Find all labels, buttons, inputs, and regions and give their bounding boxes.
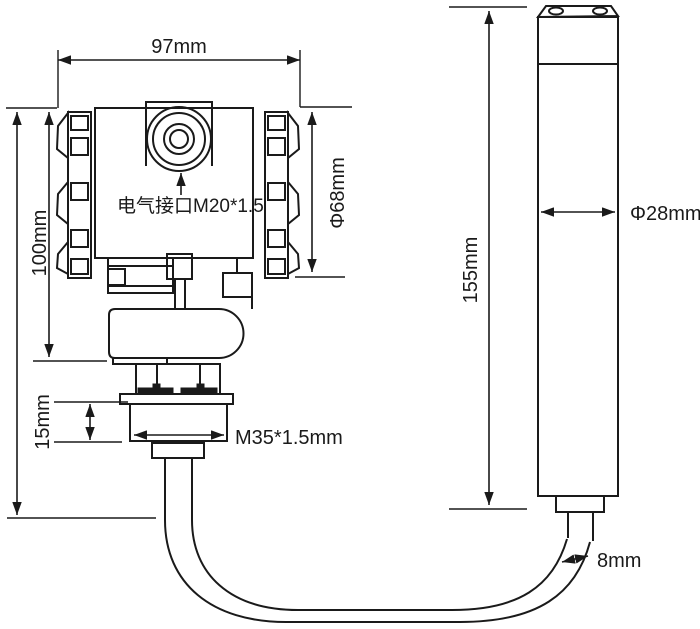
- nut-collar: [152, 443, 204, 458]
- dim-155mm: 155mm: [449, 7, 527, 509]
- right-end-cap: [265, 112, 299, 278]
- electrical-port-label: 电气接口M20*1.5: [117, 195, 264, 217]
- gasket-washers: [138, 384, 217, 394]
- dim-68mm: Φ68mm: [295, 107, 352, 277]
- dim-155mm-label: 155mm: [460, 237, 482, 304]
- dimension-drawing: 97mm 100mm 15mm Φ68mm M35*1.5mm 电气接口M20*…: [0, 0, 700, 629]
- terminal-bracket: [108, 254, 252, 309]
- probe-top-hole-left: [549, 8, 563, 15]
- probe-cable-neck: [568, 512, 593, 541]
- label-electrical-port: 电气接口M20*1.5: [117, 173, 264, 217]
- dim-8mm-label: 8mm: [597, 550, 641, 572]
- dim-8mm: 8mm: [562, 550, 641, 572]
- process-connection: [109, 309, 243, 394]
- cable-gland-port: [146, 102, 212, 171]
- mounting-flange: [120, 394, 233, 404]
- probe-bottom-collar: [556, 496, 604, 512]
- cable: [165, 520, 590, 622]
- dim-100mm-label: 100mm: [29, 210, 51, 277]
- dim-28mm-label: Φ28mm: [630, 203, 700, 225]
- drawing-canvas: 97mm 100mm 15mm Φ68mm M35*1.5mm 电气接口M20*…: [0, 0, 700, 629]
- dim-28mm: Φ28mm: [541, 203, 700, 225]
- dim-15mm: 15mm: [32, 394, 128, 450]
- dim-overall-height: [7, 112, 156, 518]
- probe-top-hole-right: [593, 8, 607, 15]
- left-end-cap: [57, 112, 91, 278]
- probe-body: [538, 17, 618, 496]
- dim-97mm-label: 97mm: [151, 36, 207, 58]
- dim-m35-thread: M35*1.5mm: [134, 427, 343, 449]
- probe-drawing: [538, 6, 618, 541]
- dim-68mm-label: Φ68mm: [327, 157, 349, 229]
- transmitter-drawing: [57, 102, 590, 622]
- dim-97mm: 97mm: [58, 36, 300, 108]
- dim-15mm-label: 15mm: [32, 394, 54, 450]
- cable-conduit: [165, 458, 192, 520]
- dim-m35-label: M35*1.5mm: [235, 427, 343, 449]
